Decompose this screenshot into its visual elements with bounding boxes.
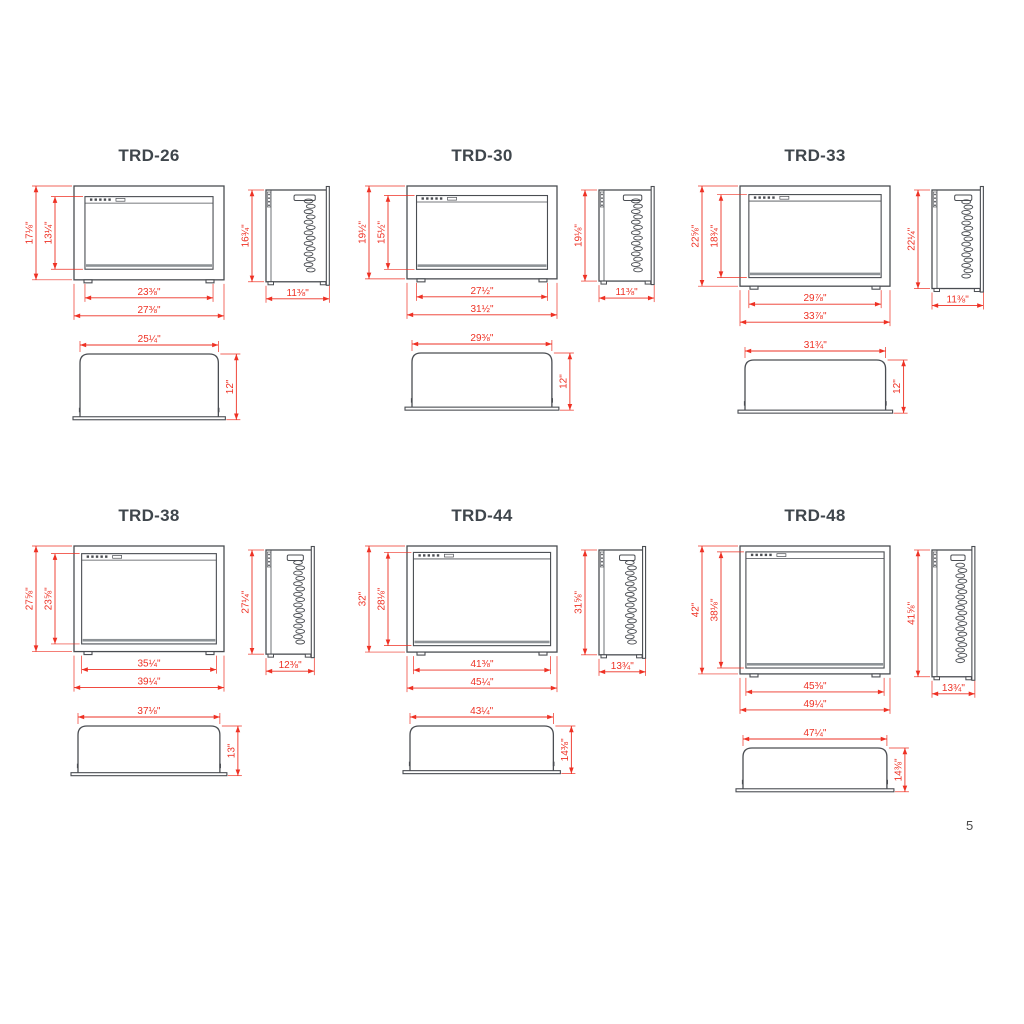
front-view-drawing: 27⅝"23⅝"35¼"39¼" bbox=[24, 540, 236, 704]
model-title: TRD-33 bbox=[690, 146, 940, 166]
svg-text:19½": 19½" bbox=[358, 220, 369, 243]
svg-text:43¼": 43¼" bbox=[470, 705, 493, 717]
svg-text:15½": 15½" bbox=[377, 220, 388, 243]
model-panel-trd-48: TRD-48 42"38⅛"45⅜"49¼" 41⅝"13¾" 47¼"14⅜" bbox=[690, 506, 1023, 866]
side-view-drawing: 31⅝"13¾" bbox=[573, 540, 659, 689]
svg-text:11⅜": 11⅜" bbox=[947, 295, 970, 306]
front-view-drawing: 42"38⅛"45⅜"49¼" bbox=[690, 540, 902, 726]
model-panel-trd-30: TRD-30 19½"15½"27½"31½" 19⅛"11⅜" 29⅜"12" bbox=[357, 146, 690, 506]
svg-text:33⅞": 33⅞" bbox=[803, 311, 826, 322]
svg-text:22⅝": 22⅝" bbox=[691, 224, 702, 247]
svg-text:13": 13" bbox=[226, 743, 237, 758]
svg-text:27⅜": 27⅜" bbox=[137, 305, 160, 316]
svg-text:25¼": 25¼" bbox=[137, 333, 160, 345]
top-view-drawing: 29⅜"12" bbox=[402, 335, 588, 420]
elevation-views: 19½"15½"27½"31½" 19⅛"11⅜" bbox=[357, 180, 667, 331]
svg-text:41⅝": 41⅝" bbox=[907, 601, 918, 624]
svg-text:49¼": 49¼" bbox=[803, 698, 826, 710]
top-view-drawing: 43¼"14⅜" bbox=[400, 708, 589, 784]
model-title: TRD-26 bbox=[24, 146, 274, 166]
svg-text:29⅜": 29⅜" bbox=[470, 333, 493, 344]
svg-text:12⅜": 12⅜" bbox=[279, 660, 302, 671]
svg-text:17⅛": 17⅛" bbox=[25, 221, 36, 244]
model-panel-trd-44: TRD-44 32"28⅛"41⅜"45¼" 31⅝"13¾" 43¼"14⅜" bbox=[357, 506, 690, 866]
svg-text:27½": 27½" bbox=[470, 286, 493, 297]
svg-text:32": 32" bbox=[358, 591, 369, 606]
svg-text:47¼": 47¼" bbox=[803, 727, 826, 739]
svg-text:23⅜": 23⅜" bbox=[137, 287, 160, 298]
model-panel-trd-26: TRD-26 17⅛"13¼"23⅜"27⅜" 16¾"11⅜" 25¼"12" bbox=[24, 146, 357, 506]
front-view-drawing: 22⅝"18¾"29⅞"33⅞" bbox=[690, 180, 902, 338]
svg-text:31⅝": 31⅝" bbox=[574, 590, 585, 613]
elevation-views: 22⅝"18¾"29⅞"33⅞" 22¼"11⅜" bbox=[690, 180, 996, 338]
top-view-drawing: 31¾"12" bbox=[735, 342, 922, 423]
svg-text:12": 12" bbox=[892, 379, 903, 394]
side-view-drawing: 16¾"11⅜" bbox=[240, 180, 342, 316]
svg-text:31¾": 31¾" bbox=[803, 340, 826, 351]
svg-text:28⅛": 28⅛" bbox=[377, 587, 388, 610]
svg-text:13¼": 13¼" bbox=[43, 221, 55, 244]
svg-text:12": 12" bbox=[558, 374, 569, 389]
side-view-drawing: 22¼"11⅜" bbox=[906, 180, 996, 323]
front-view-drawing: 17⅛"13¼"23⅜"27⅜" bbox=[24, 180, 236, 332]
svg-text:45⅜": 45⅜" bbox=[803, 681, 826, 692]
top-view-drawing: 47¼"14⅜" bbox=[733, 730, 923, 802]
model-panel-trd-33: TRD-33 22⅝"18¾"29⅞"33⅞" 22¼"11⅜" 31¾"12" bbox=[690, 146, 1023, 506]
svg-text:23⅝": 23⅝" bbox=[44, 587, 55, 610]
top-view-drawing: 37⅛"13" bbox=[68, 708, 256, 786]
model-title: TRD-44 bbox=[357, 506, 607, 526]
model-title: TRD-30 bbox=[357, 146, 607, 166]
elevation-views: 42"38⅛"45⅜"49¼" 41⅝"13¾" bbox=[690, 540, 988, 726]
svg-text:35¼": 35¼" bbox=[137, 658, 160, 670]
svg-text:39¼": 39¼" bbox=[137, 676, 160, 688]
svg-text:41⅜": 41⅜" bbox=[470, 659, 493, 670]
model-title: TRD-48 bbox=[690, 506, 940, 526]
spec-sheet: TRD-26 17⅛"13¼"23⅜"27⅜" 16¾"11⅜" 25¼"12"… bbox=[24, 146, 1023, 866]
svg-text:45¼": 45¼" bbox=[470, 676, 493, 688]
model-title: TRD-38 bbox=[24, 506, 274, 526]
svg-text:37⅛": 37⅛" bbox=[137, 706, 160, 717]
svg-text:11⅜": 11⅜" bbox=[615, 287, 638, 298]
svg-text:42": 42" bbox=[691, 602, 702, 617]
side-view-drawing: 27¼"12⅜" bbox=[240, 540, 327, 688]
front-view-drawing: 19½"15½"27½"31½" bbox=[357, 180, 569, 331]
elevation-views: 27⅝"23⅝"35¼"39¼" 27¼"12⅜" bbox=[24, 540, 327, 704]
svg-text:18¾": 18¾" bbox=[710, 224, 721, 247]
side-view-drawing: 19⅛"11⅜" bbox=[573, 180, 667, 315]
svg-text:19⅛": 19⅛" bbox=[574, 224, 585, 247]
side-view-drawing: 41⅝"13¾" bbox=[906, 540, 988, 711]
svg-text:27⅝": 27⅝" bbox=[25, 587, 36, 610]
svg-text:14⅜": 14⅜" bbox=[893, 758, 904, 781]
elevation-views: 17⅛"13¼"23⅜"27⅜" 16¾"11⅜" bbox=[24, 180, 342, 332]
model-panel-trd-38: TRD-38 27⅝"23⅝"35¼"39¼" 27¼"12⅜" 37⅛"13" bbox=[24, 506, 357, 866]
svg-text:31½": 31½" bbox=[470, 304, 493, 315]
top-view-drawing: 25¼"12" bbox=[70, 336, 254, 430]
elevation-views: 32"28⅛"41⅜"45¼" 31⅝"13¾" bbox=[357, 540, 659, 704]
svg-text:22¼": 22¼" bbox=[906, 227, 918, 250]
front-view-drawing: 32"28⅛"41⅜"45¼" bbox=[357, 540, 569, 704]
svg-text:29⅞": 29⅞" bbox=[803, 293, 826, 304]
svg-text:13¾": 13¾" bbox=[611, 661, 634, 672]
svg-text:16¾": 16¾" bbox=[241, 224, 252, 247]
svg-text:38⅛": 38⅛" bbox=[710, 598, 721, 621]
svg-text:11⅜": 11⅜" bbox=[287, 288, 310, 299]
svg-text:13¾": 13¾" bbox=[942, 683, 965, 694]
svg-text:27¼": 27¼" bbox=[240, 590, 252, 613]
svg-text:12": 12" bbox=[225, 379, 236, 394]
svg-text:14⅜": 14⅜" bbox=[560, 738, 571, 761]
page-number: 5 bbox=[966, 818, 973, 833]
